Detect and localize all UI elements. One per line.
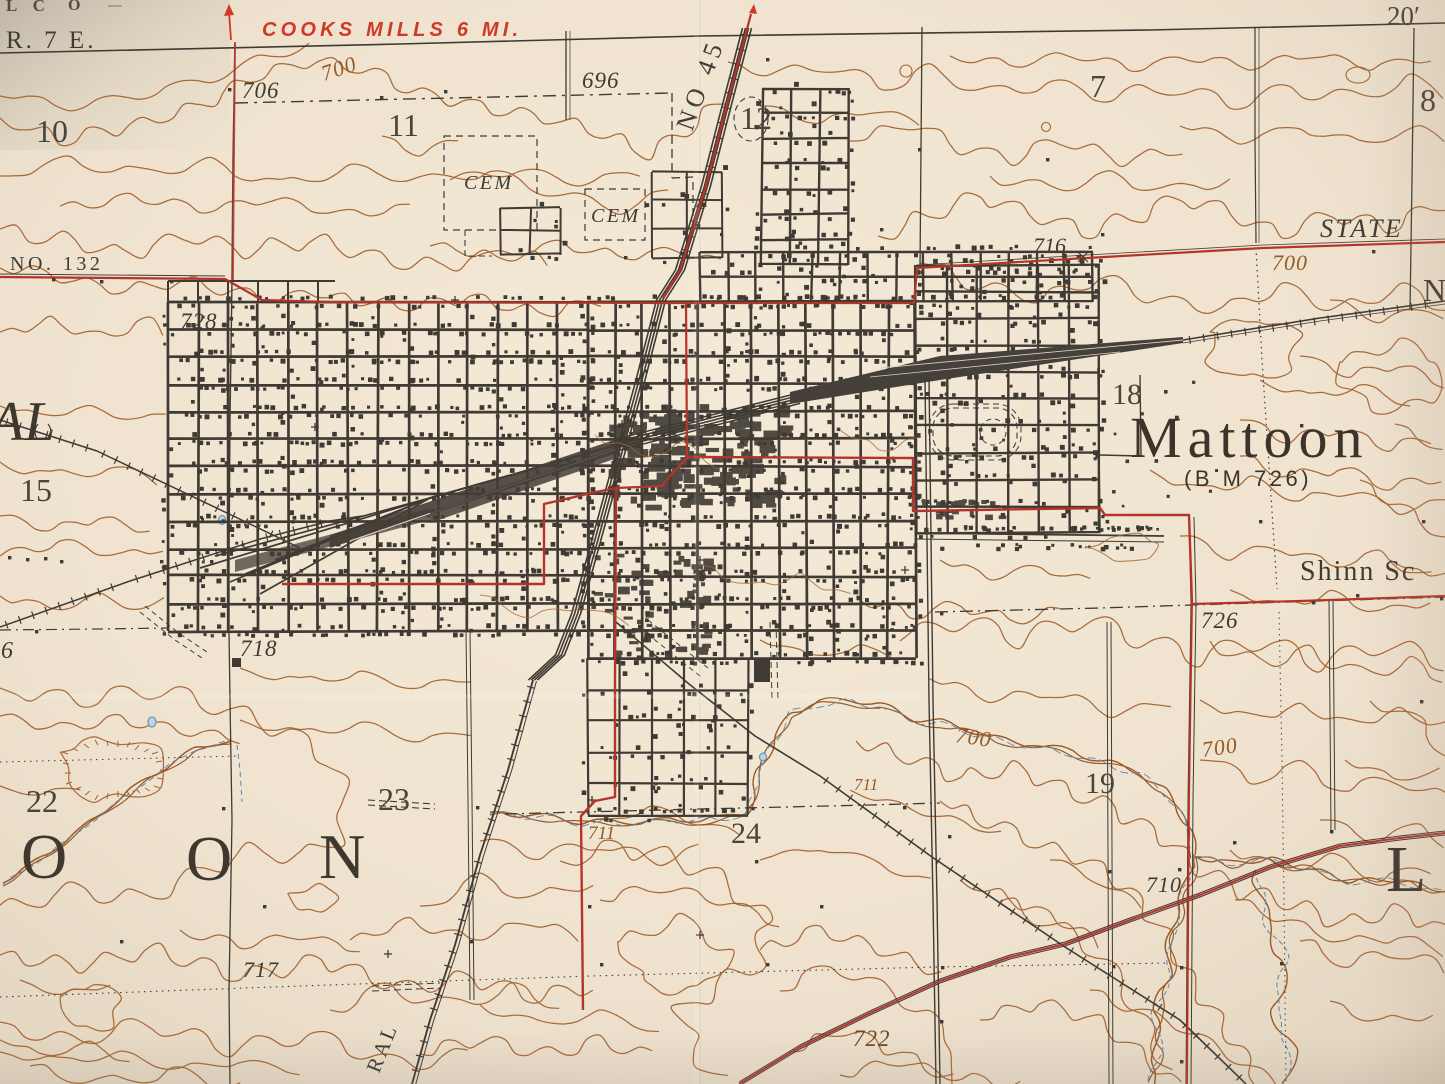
svg-text:718: 718 [240,636,278,661]
svg-text:L C: L C [6,0,51,15]
svg-text:6: 6 [1,638,13,664]
svg-text:700: 700 [1272,250,1308,275]
svg-text:711: 711 [854,775,878,794]
svg-text:700: 700 [954,722,993,752]
svg-text:716: 716 [1033,233,1066,258]
svg-text:23: 23 [378,781,410,817]
svg-text:NO. 132: NO. 132 [10,253,103,275]
svg-text:700: 700 [1200,732,1239,762]
svg-text:—: — [107,0,123,13]
svg-text:O: O [186,823,232,894]
svg-text:728: 728 [180,309,218,334]
svg-text:11: 11 [388,107,419,143]
svg-text:O: O [21,821,67,892]
svg-text:(B M 726): (B M 726) [1184,466,1312,491]
svg-text:7: 7 [1090,68,1106,104]
svg-text:711: 711 [588,823,615,844]
svg-text:15: 15 [20,472,52,508]
svg-text:12: 12 [740,100,772,136]
svg-text:717: 717 [243,957,279,982]
svg-text:22: 22 [26,783,58,819]
svg-text:706: 706 [242,78,280,103]
svg-text:19: 19 [1085,767,1115,800]
svg-text:AL: AL [0,391,55,453]
svg-text:10: 10 [36,113,68,149]
svg-text:O: O [68,0,80,14]
svg-text:R. 7 E.: R. 7 E. [6,27,96,54]
svg-text:24: 24 [731,817,761,850]
svg-text:CEM: CEM [591,205,641,227]
svg-text:Mattoon: Mattoon [1130,405,1369,470]
svg-text:726: 726 [1201,608,1239,633]
svg-text:710: 710 [1146,872,1182,897]
svg-text:696: 696 [582,68,620,93]
svg-text:CEM: CEM [464,172,514,194]
svg-text:COOKS MILLS 6 MI.: COOKS MILLS 6 MI. [262,19,522,41]
svg-text:N: N [319,821,365,892]
